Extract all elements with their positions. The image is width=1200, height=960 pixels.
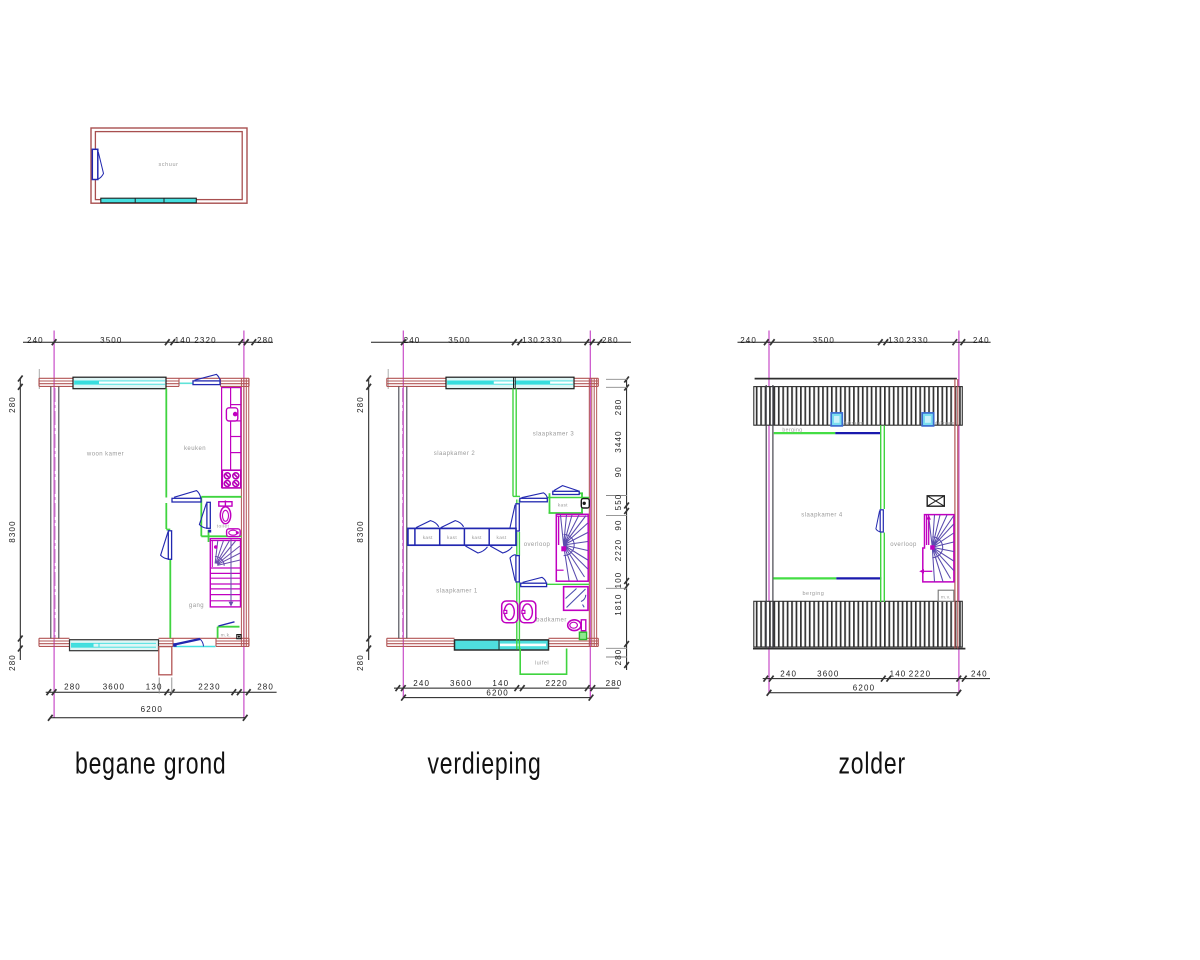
svg-text:90: 90 — [614, 466, 623, 477]
svg-text:slaapkamer 4: slaapkamer 4 — [801, 513, 843, 519]
svg-text:8300: 8300 — [8, 520, 17, 542]
svg-text:3600: 3600 — [103, 683, 125, 692]
svg-text:280: 280 — [356, 654, 365, 671]
svg-text:6200: 6200 — [853, 684, 875, 693]
svg-text:overloop: overloop — [524, 542, 551, 548]
svg-text:240: 240 — [973, 336, 990, 345]
svg-text:kast: kast — [497, 535, 507, 541]
svg-text:1810: 1810 — [614, 593, 623, 615]
svg-text:keuken: keuken — [184, 446, 206, 452]
svg-text:240: 240 — [413, 679, 430, 688]
svg-text:2230: 2230 — [198, 683, 220, 692]
svg-text:kast: kast — [558, 503, 568, 509]
svg-text:overloop: overloop — [890, 542, 917, 548]
svg-text:kast: kast — [472, 535, 482, 541]
svg-text:schuur: schuur — [158, 162, 178, 168]
svg-text:m.v.: m.v. — [941, 596, 951, 601]
svg-text:berging: berging — [782, 427, 802, 433]
svg-text:130: 130 — [888, 336, 905, 345]
svg-text:280: 280 — [602, 336, 619, 345]
svg-text:3600: 3600 — [817, 670, 839, 679]
svg-text:280: 280 — [257, 683, 274, 692]
svg-text:slaapkamer 3: slaapkamer 3 — [533, 432, 575, 438]
svg-text:90: 90 — [614, 519, 623, 530]
svg-text:140: 140 — [492, 679, 509, 688]
svg-text:badkamer: badkamer — [536, 618, 567, 624]
svg-text:130: 130 — [146, 683, 163, 692]
svg-text:140: 140 — [890, 670, 907, 679]
svg-text:kast: kast — [447, 535, 457, 541]
svg-text:280: 280 — [356, 396, 365, 413]
svg-text:m.k.: m.k. — [221, 633, 231, 639]
svg-text:berging: berging — [802, 591, 824, 597]
svg-text:100: 100 — [614, 572, 623, 589]
svg-text:240: 240 — [780, 670, 797, 679]
svg-text:gang: gang — [189, 603, 204, 609]
svg-text:2330: 2330 — [906, 336, 928, 345]
svg-text:240: 240 — [404, 336, 421, 345]
svg-text:3600: 3600 — [450, 679, 472, 688]
svg-text:3500: 3500 — [448, 336, 470, 345]
svg-text:2220: 2220 — [614, 539, 623, 561]
svg-text:280: 280 — [606, 679, 623, 688]
svg-text:140: 140 — [175, 336, 192, 345]
svg-text:280: 280 — [614, 399, 623, 416]
svg-text:luifel: luifel — [535, 661, 549, 667]
svg-text:slaapkamer 1: slaapkamer 1 — [436, 589, 478, 595]
svg-text:280: 280 — [8, 396, 17, 413]
svg-text:slaapkamer 2: slaapkamer 2 — [434, 451, 476, 457]
svg-text:280: 280 — [257, 336, 274, 345]
svg-text:240: 240 — [740, 336, 757, 345]
svg-text:550: 550 — [614, 494, 623, 511]
svg-text:3500: 3500 — [813, 336, 835, 345]
svg-text:130: 130 — [522, 336, 539, 345]
svg-text:toilet: toilet — [217, 523, 230, 529]
svg-text:3440: 3440 — [614, 430, 623, 452]
svg-text:6200: 6200 — [486, 689, 508, 698]
svg-text:kast: kast — [423, 535, 433, 541]
svg-text:2330: 2330 — [540, 336, 562, 345]
svg-text:3500: 3500 — [100, 336, 122, 345]
svg-text:2220: 2220 — [909, 670, 931, 679]
svg-text:2320: 2320 — [194, 336, 216, 345]
svg-text:280: 280 — [64, 683, 81, 692]
svg-text:8300: 8300 — [356, 520, 365, 542]
svg-text:begane grond: begane grond — [75, 746, 227, 780]
svg-text:2220: 2220 — [545, 679, 567, 688]
svg-text:zolder: zolder — [839, 746, 906, 780]
svg-text:6200: 6200 — [141, 705, 163, 714]
svg-text:240: 240 — [27, 336, 44, 345]
svg-text:woon kamer: woon kamer — [86, 452, 124, 458]
svg-text:dakraam: dakraam — [935, 420, 955, 425]
svg-text:verdieping: verdieping — [428, 746, 542, 780]
svg-text:280: 280 — [8, 654, 17, 671]
svg-text:dakraam: dakraam — [844, 420, 864, 425]
svg-text:280: 280 — [614, 649, 623, 666]
svg-text:240: 240 — [971, 670, 988, 679]
